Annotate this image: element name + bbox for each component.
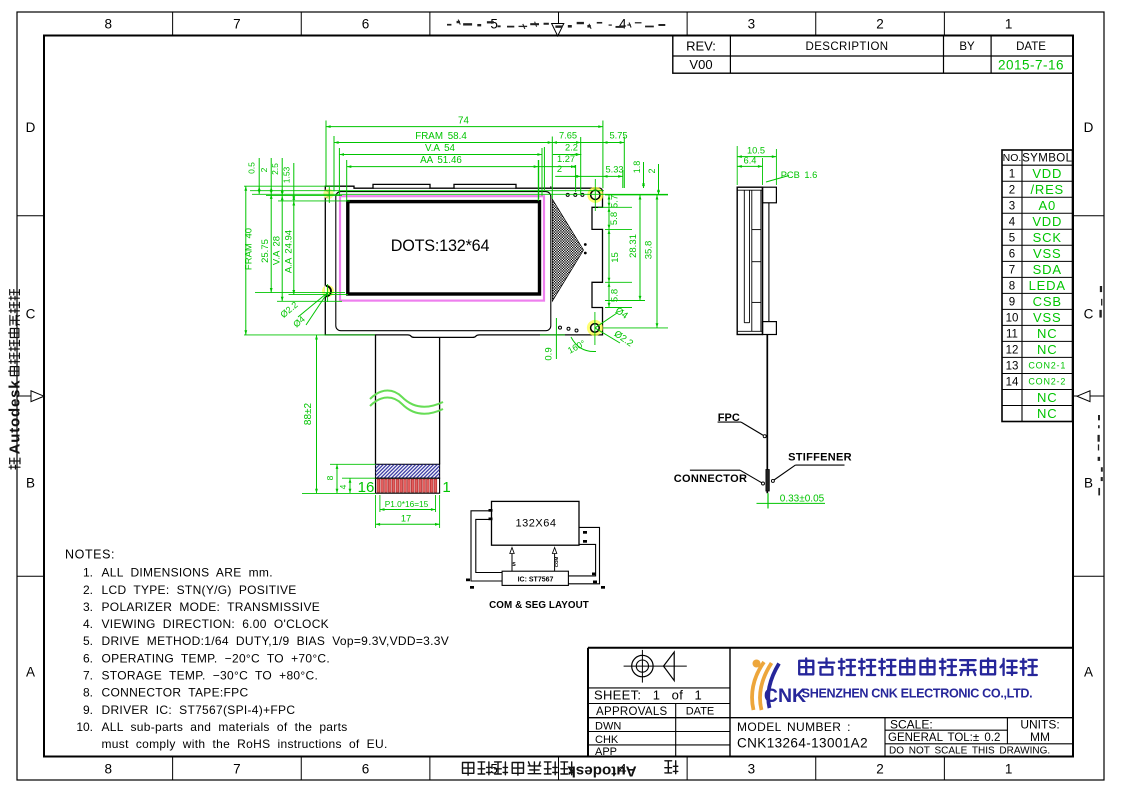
svg-text:REV:: REV: — [686, 39, 716, 54]
svg-text:VIEWING DIRECTION: 6.00 O'CLOC: VIEWING DIRECTION: 6.00 O'CLOCK — [102, 617, 329, 631]
svg-text:2.5: 2.5 — [270, 163, 280, 175]
svg-text:P1.0*16=15: P1.0*16=15 — [385, 499, 429, 509]
svg-text:A: A — [1084, 665, 1093, 680]
svg-text:STORAGE TEMP. −30°C TO +80°C.: STORAGE TEMP. −30°C TO +80°C. — [102, 669, 319, 683]
svg-text:SCK: SCK — [1033, 230, 1062, 245]
svg-text:DATE: DATE — [1016, 41, 1046, 53]
svg-text:VDD: VDD — [1032, 166, 1062, 181]
svg-text:9: 9 — [1009, 297, 1015, 309]
svg-text:CON2-2: CON2-2 — [1028, 377, 1066, 387]
svg-text:MODEL NUMBER :: MODEL NUMBER : — [737, 720, 851, 734]
svg-text:2: 2 — [557, 164, 562, 174]
svg-text:8: 8 — [105, 17, 113, 32]
svg-text:1.: 1. — [83, 566, 93, 580]
svg-text:DOTS:132*64: DOTS:132*64 — [391, 237, 490, 255]
svg-text:7: 7 — [233, 17, 241, 32]
svg-text:14: 14 — [1006, 377, 1019, 389]
svg-text:SDA: SDA — [1033, 262, 1062, 277]
svg-text:DATE: DATE — [686, 706, 715, 718]
svg-text:7: 7 — [233, 762, 241, 777]
svg-text:COM: COM — [554, 557, 559, 568]
svg-text:NC: NC — [1037, 326, 1057, 341]
svg-text:GENERAL TOL:± 0.2: GENERAL TOL:± 0.2 — [888, 732, 1000, 744]
svg-text:17: 17 — [401, 514, 411, 524]
svg-text:0.33±0.05: 0.33±0.05 — [780, 494, 825, 505]
svg-text:STIFFENER: STIFFENER — [788, 451, 852, 463]
svg-text:DWN: DWN — [595, 721, 621, 733]
svg-text:88±2: 88±2 — [303, 402, 314, 425]
svg-text:C: C — [26, 307, 36, 322]
svg-text:8: 8 — [325, 475, 335, 480]
svg-text:132X64: 132X64 — [516, 518, 557, 530]
svg-text:NC: NC — [1037, 342, 1057, 357]
svg-text:5.75: 5.75 — [609, 131, 627, 141]
svg-text:9.: 9. — [83, 703, 93, 717]
svg-text:VDD: VDD — [1032, 214, 1062, 229]
svg-text:COM & SEG LAYOUT: COM & SEG LAYOUT — [489, 600, 589, 611]
svg-text:AA 51.46: AA 51.46 — [420, 155, 462, 166]
svg-text:MM: MM — [1030, 730, 1050, 744]
svg-text:A0: A0 — [1038, 198, 1056, 213]
svg-text:5.8: 5.8 — [610, 289, 621, 302]
svg-text:PCB 1.6: PCB 1.6 — [781, 170, 818, 180]
svg-text:POLARIZER MODE: TRANSMISSIVE: POLARIZER MODE: TRANSMISSIVE — [102, 600, 321, 614]
svg-text:NC: NC — [1037, 390, 1057, 405]
svg-text:SHENZHEN CNK ELECTRONIC CO.,LT: SHENZHEN CNK ELECTRONIC CO.,LTD. — [802, 687, 1033, 701]
svg-text:4: 4 — [1009, 216, 1016, 228]
svg-text:6: 6 — [1009, 249, 1015, 261]
svg-text:10: 10 — [1006, 313, 1019, 325]
svg-text:NO.: NO. — [1003, 152, 1022, 164]
svg-text:10.5: 10.5 — [747, 146, 765, 156]
svg-text:7.65: 7.65 — [559, 131, 577, 141]
svg-text:4: 4 — [619, 17, 627, 32]
svg-text:0.5: 0.5 — [246, 162, 256, 174]
svg-text:V.A 28: V.A 28 — [271, 236, 282, 265]
svg-text:VSS: VSS — [1033, 310, 1061, 325]
svg-text:DRIVER IC: ST7567(SPI-4)+FPC: DRIVER IC: ST7567(SPI-4)+FPC — [102, 703, 296, 717]
svg-text:NC: NC — [1037, 406, 1057, 421]
svg-text:V00: V00 — [689, 57, 712, 72]
svg-text:4.: 4. — [83, 617, 93, 631]
svg-text:5.: 5. — [83, 634, 93, 648]
svg-text:LEDA: LEDA — [1029, 278, 1066, 293]
svg-text:CNK: CNK — [764, 685, 806, 707]
svg-text:3.: 3. — [83, 600, 93, 614]
svg-text:2: 2 — [876, 17, 884, 32]
svg-text:must comply with the RoHS inst: must comply with the RoHS instructions o… — [102, 737, 388, 751]
svg-text:A.A 24.94: A.A 24.94 — [283, 230, 294, 273]
svg-text:8: 8 — [1009, 281, 1015, 293]
svg-text:2: 2 — [1009, 184, 1015, 196]
svg-text:1: 1 — [1005, 17, 1013, 32]
svg-text:15: 15 — [610, 252, 621, 263]
svg-text:BY: BY — [959, 41, 975, 53]
svg-text:IC: ST7567: IC: ST7567 — [518, 577, 554, 584]
svg-text:C: C — [1084, 307, 1094, 322]
svg-text:6: 6 — [362, 17, 370, 32]
svg-text:6: 6 — [362, 762, 370, 777]
svg-text:25.75: 25.75 — [260, 239, 271, 263]
svg-text:DRIVE METHOD:1/64 DUTY,1/9 BIA: DRIVE METHOD:1/64 DUTY,1/9 BIAS Vop=9.3V… — [102, 634, 450, 648]
svg-text:FRAM 40: FRAM 40 — [244, 228, 255, 270]
svg-text:SCALE:: SCALE: — [890, 718, 933, 732]
svg-text:8.: 8. — [83, 686, 93, 700]
svg-text:1: 1 — [442, 479, 450, 496]
svg-text:1.8: 1.8 — [632, 161, 642, 174]
svg-text:6.: 6. — [83, 651, 93, 665]
svg-text:Autodesk: Autodesk — [7, 380, 24, 455]
svg-text:11: 11 — [1006, 329, 1018, 341]
svg-text:3: 3 — [748, 17, 756, 32]
svg-text:CHK: CHK — [595, 734, 619, 746]
svg-text:2015-7-16: 2015-7-16 — [998, 58, 1064, 73]
svg-text:1: 1 — [1009, 168, 1015, 180]
svg-text:7: 7 — [1009, 265, 1015, 277]
svg-text:FRAM 58.4: FRAM 58.4 — [415, 131, 467, 142]
svg-text:2.: 2. — [83, 583, 93, 597]
svg-text:CONNECTOR: CONNECTOR — [674, 473, 747, 485]
svg-text:ALL sub-parts and materials of: ALL sub-parts and materials of the parts — [102, 720, 348, 734]
svg-text:D: D — [1084, 120, 1094, 135]
svg-text:DESCRIPTION: DESCRIPTION — [806, 41, 889, 53]
svg-text:CON2-1: CON2-1 — [1028, 361, 1066, 371]
svg-text:CSB: CSB — [1033, 294, 1062, 309]
svg-text:5: 5 — [1009, 232, 1015, 244]
svg-text:10.: 10. — [76, 720, 93, 734]
svg-text:1.27: 1.27 — [557, 154, 575, 164]
svg-text:Autodesk: Autodesk — [567, 763, 637, 780]
svg-text:CONNECTOR TAPE:FPC: CONNECTOR TAPE:FPC — [102, 686, 249, 700]
svg-text:2.2: 2.2 — [565, 143, 578, 153]
svg-text:SYMBOL: SYMBOL — [1022, 153, 1073, 165]
svg-text:4: 4 — [338, 484, 348, 489]
svg-text:CNK13264-13001A2: CNK13264-13001A2 — [737, 736, 868, 751]
svg-text:DO NOT SCALE THIS DRAWING.: DO NOT SCALE THIS DRAWING. — [889, 746, 1050, 757]
svg-text:V.A 54: V.A 54 — [425, 143, 456, 154]
svg-text:3: 3 — [748, 762, 756, 777]
svg-text:ALL DIMENSIONS ARE mm.: ALL DIMENSIONS ARE mm. — [102, 566, 273, 580]
svg-text:35.8: 35.8 — [644, 241, 655, 260]
svg-text:8: 8 — [105, 762, 113, 777]
svg-text:0.9: 0.9 — [544, 347, 555, 360]
svg-text:1: 1 — [1005, 762, 1013, 777]
svg-text:B: B — [1084, 476, 1093, 491]
svg-text:NOTES:: NOTES: — [65, 548, 115, 562]
svg-text:A: A — [26, 665, 35, 680]
svg-text:1.53: 1.53 — [281, 166, 291, 183]
svg-text:LCD TYPE: STN(Y/G) POSITIVE: LCD TYPE: STN(Y/G) POSITIVE — [102, 583, 297, 597]
svg-text:APP: APP — [595, 746, 617, 758]
svg-text:28.31: 28.31 — [628, 234, 639, 258]
svg-text:5: 5 — [490, 17, 498, 32]
svg-text:SHEET: 1 of 1: SHEET: 1 of 1 — [594, 688, 702, 703]
svg-text:5.33: 5.33 — [605, 165, 623, 175]
svg-text:2: 2 — [647, 168, 657, 173]
svg-text:7.: 7. — [83, 669, 93, 683]
svg-text:5.7: 5.7 — [610, 195, 621, 208]
svg-text:5.8: 5.8 — [609, 212, 620, 225]
svg-text:B: B — [26, 476, 35, 491]
svg-text:2: 2 — [259, 167, 269, 172]
svg-text:/RES: /RES — [1030, 182, 1064, 197]
svg-text:D: D — [26, 120, 36, 135]
svg-text:13: 13 — [1006, 361, 1019, 373]
svg-text:6.4: 6.4 — [744, 156, 757, 166]
svg-text:12: 12 — [1006, 345, 1019, 357]
svg-text:VSS: VSS — [1033, 246, 1061, 261]
svg-text:3: 3 — [1009, 200, 1015, 212]
svg-text:OPERATING TEMP. −20°C TO +70°C: OPERATING TEMP. −20°C TO +70°C. — [102, 651, 331, 665]
svg-text:2: 2 — [876, 762, 884, 777]
svg-text:APPROVALS: APPROVALS — [596, 706, 668, 718]
svg-text:74: 74 — [458, 116, 469, 127]
